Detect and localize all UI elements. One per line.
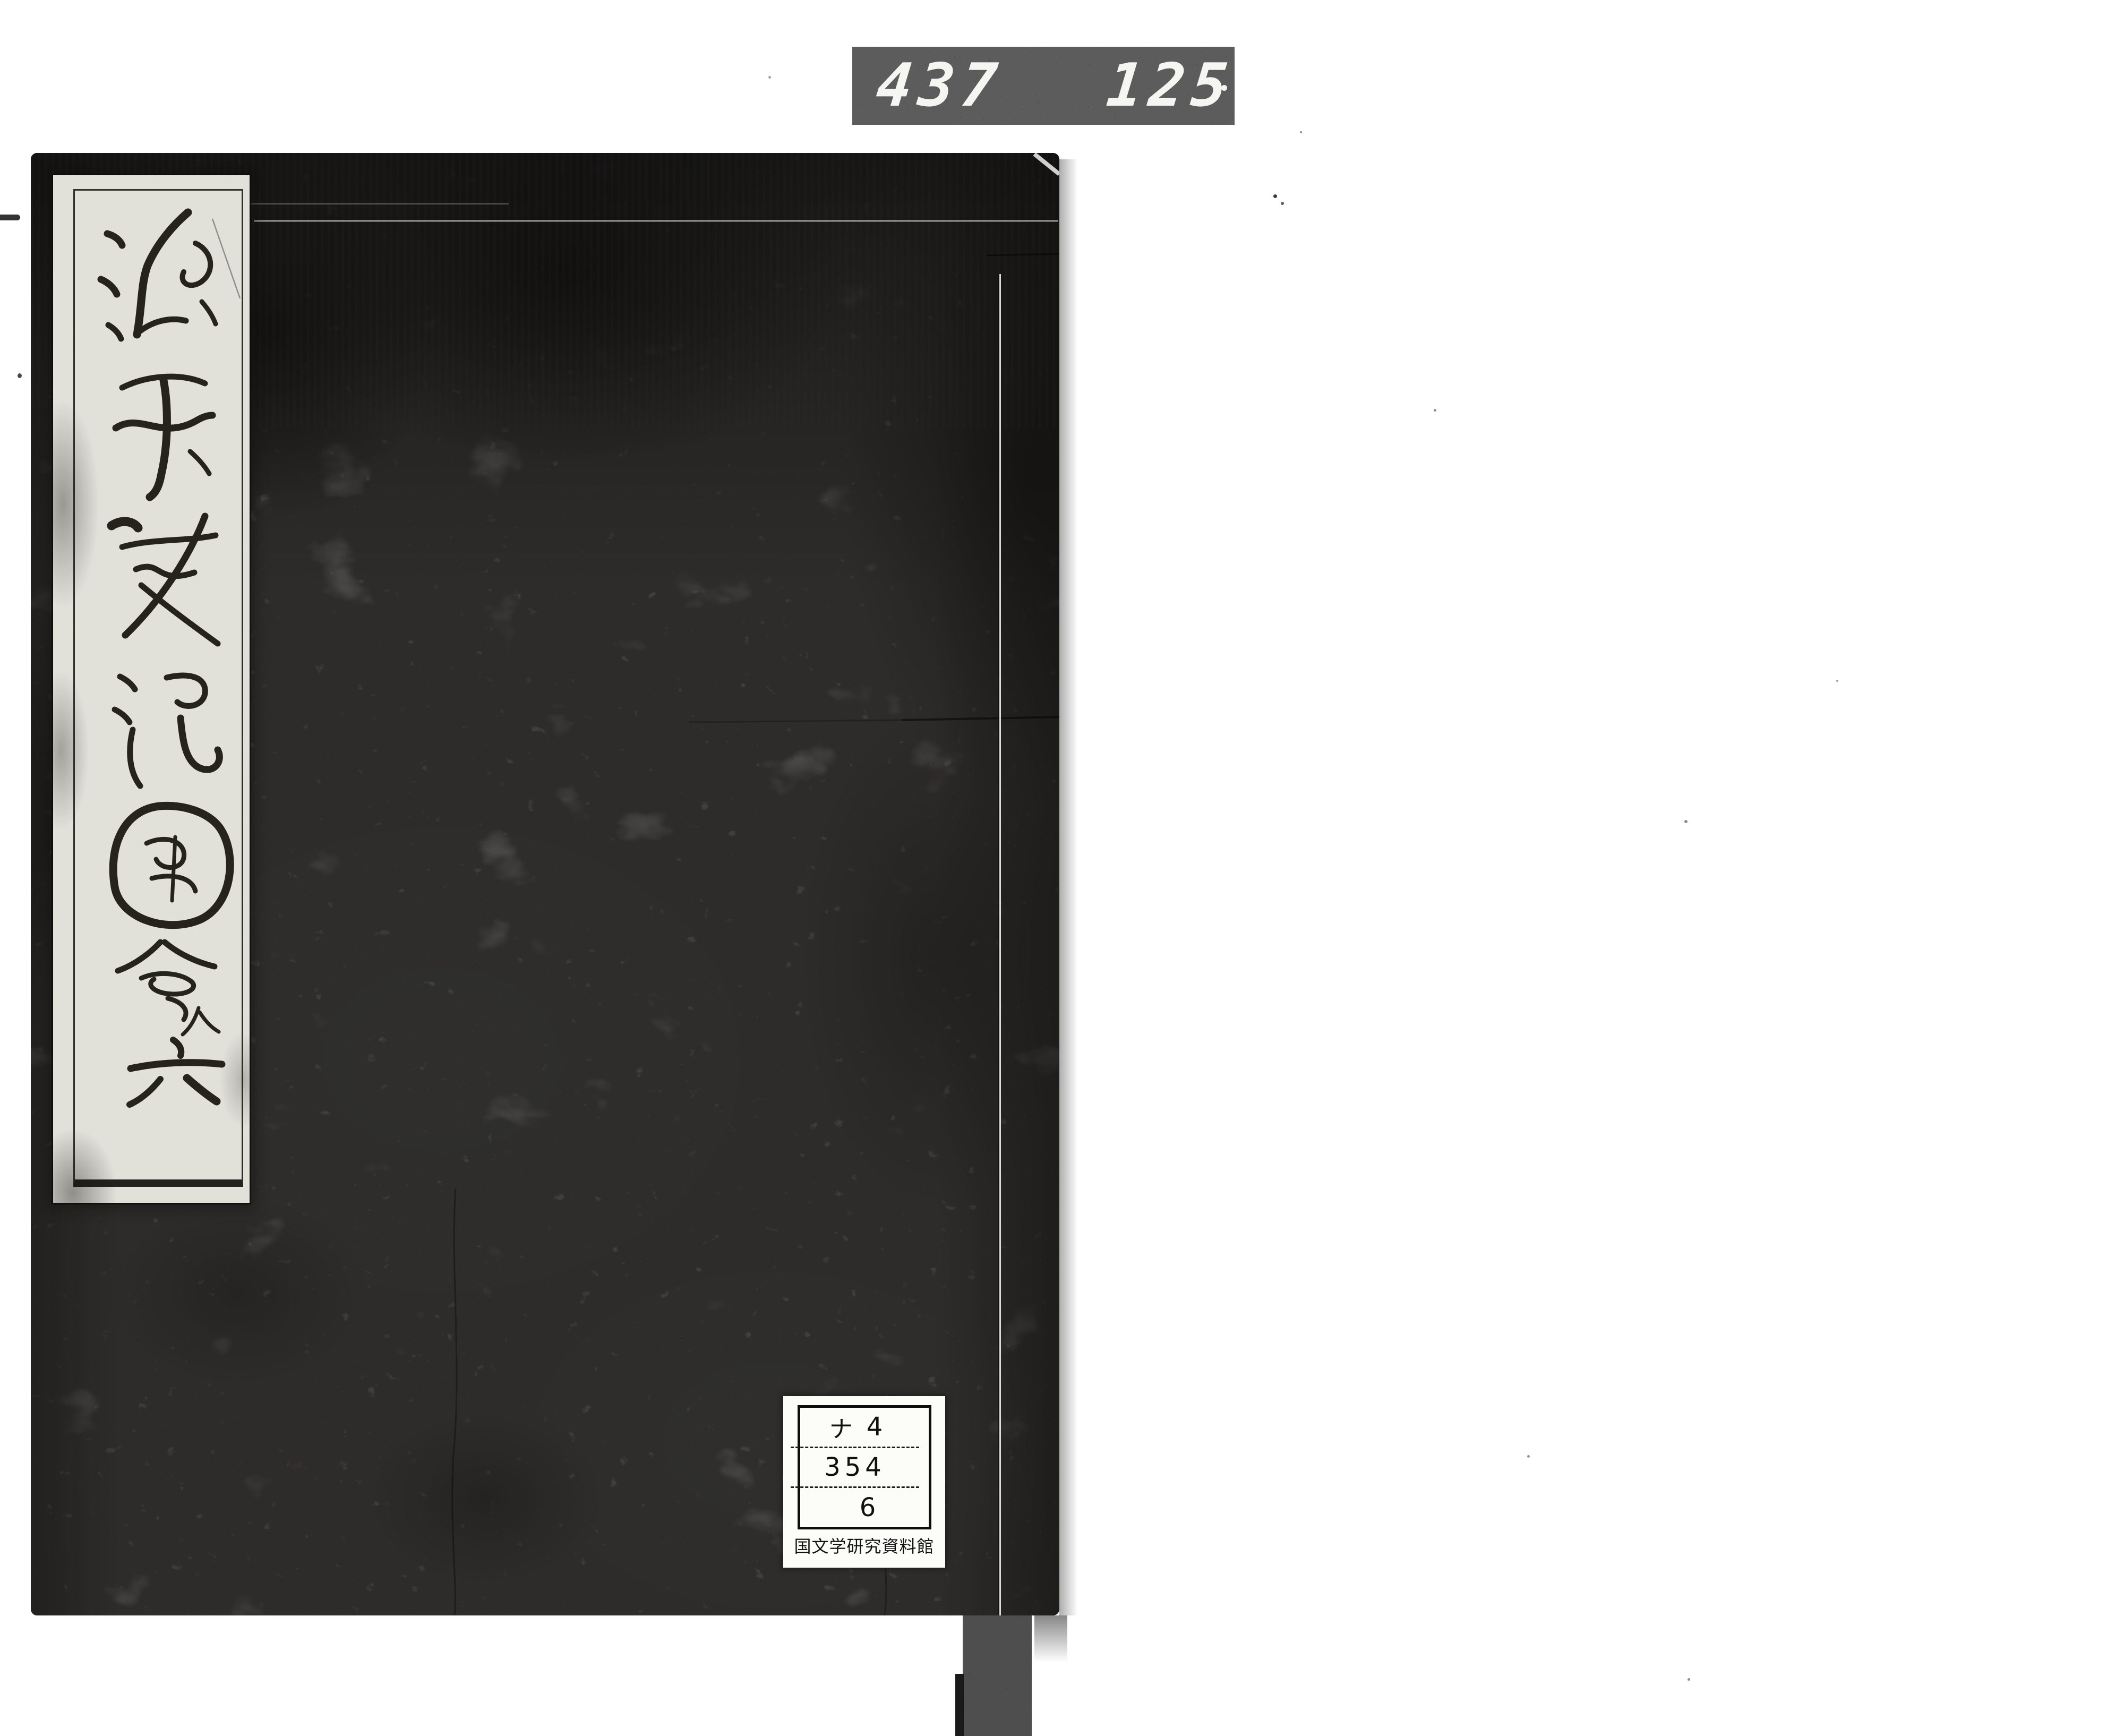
bottom-tab-notch [955, 1674, 964, 1736]
film-counter-dot [1221, 85, 1227, 91]
title-label: 源平盛衰記図会 入 六 [53, 175, 250, 1203]
corner-nick [1034, 154, 1059, 174]
crack-line [452, 1188, 457, 1615]
scan-speck [1836, 680, 1838, 682]
film-counter-bar: 437 125 [852, 47, 1235, 125]
tab-grain [963, 1615, 1032, 1736]
scan-speck [1688, 1678, 1690, 1681]
scan-speck [768, 76, 771, 79]
scan-speck [1434, 409, 1436, 412]
library-label: ナ 4 354 6 国文学研究資料館 [783, 1396, 945, 1568]
bottom-binding-tab [963, 1615, 1032, 1736]
call-number-row1-number: 4 [867, 1412, 883, 1442]
film-counter-left-number: 437 [848, 47, 1007, 125]
call-number-row-1: ナ 4 [792, 1408, 920, 1447]
scan-speck [1281, 202, 1284, 205]
scan-speck [1527, 1455, 1530, 1458]
scan-speck [1273, 194, 1277, 198]
scan-speck [1684, 820, 1688, 823]
call-number-row-2: 354 [791, 1447, 919, 1489]
dark-crease-line [987, 254, 1059, 255]
call-number-row-3: 6 [803, 1488, 932, 1527]
dark-crease-line [902, 717, 1059, 720]
bottom-tab-streak [1034, 1615, 1067, 1662]
call-number-box: ナ 4 354 6 [798, 1405, 931, 1529]
film-counter-right-number: 125 [1103, 47, 1239, 125]
call-number-kana: ナ [829, 1410, 853, 1444]
title-calligraphy-drawing [53, 175, 250, 1203]
left-edge-mark [0, 215, 20, 220]
dark-crease-line [689, 720, 902, 722]
scan-speck [1300, 131, 1302, 133]
binding-seam [998, 274, 1001, 1615]
cover-right-edge-fade [1059, 159, 1077, 1615]
institution-caption: 国文学研究資料館 [783, 1533, 945, 1558]
scan-speck [18, 373, 22, 378]
scanned-page: { "film_counter": { "left_number": "437"… [0, 0, 2124, 1736]
